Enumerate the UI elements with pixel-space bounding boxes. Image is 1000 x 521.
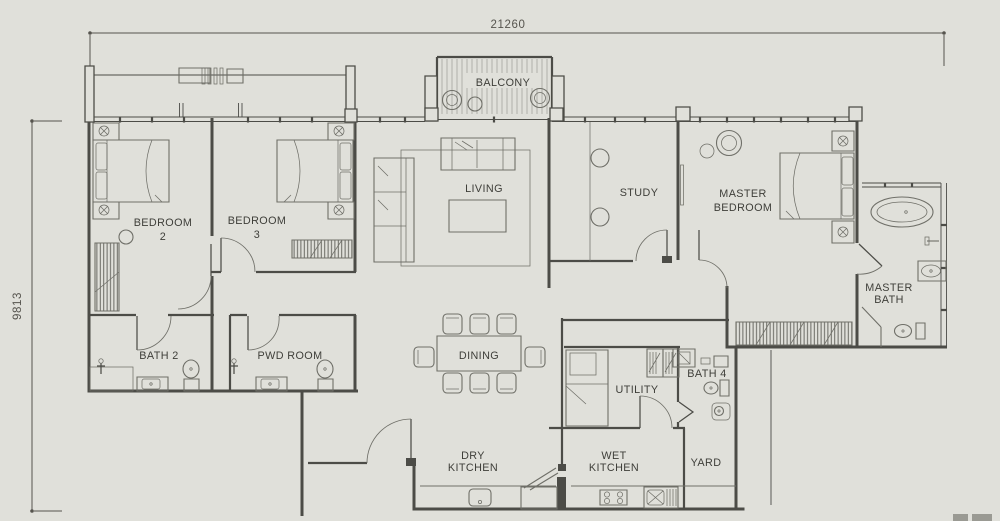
room-label-master-bath: MASTER xyxy=(865,282,912,294)
bathtub-icon xyxy=(871,197,933,227)
kitchen-sink-icon xyxy=(469,489,491,506)
room-label-master-bath: BATH xyxy=(874,294,904,306)
dimension-height-label: 9813 xyxy=(12,292,24,320)
floor-plan-page: 21260 9813 xyxy=(0,0,1000,521)
chaise-sofa-icon xyxy=(374,158,414,262)
master-bath-fixtures xyxy=(862,197,946,347)
nightstand-lamp-icon xyxy=(328,123,354,219)
room-label-dry-kitchen: KITCHEN xyxy=(448,462,498,474)
wardrobe-icon xyxy=(736,322,852,345)
coffee-table-icon xyxy=(449,200,506,232)
bath4-fixtures xyxy=(701,356,730,420)
shelf-icon xyxy=(714,356,728,367)
sink-icon xyxy=(256,377,287,391)
pwd-room-fixtures xyxy=(230,359,333,391)
stove-icon xyxy=(600,490,627,505)
floor-plan-drawing: 21260 9813 xyxy=(0,0,1000,521)
nightstand-lamp-icon xyxy=(93,123,119,219)
room-label-dry-kitchen: DRY xyxy=(461,450,485,462)
balcony-chairs-icon xyxy=(443,89,550,112)
armchair-icon xyxy=(700,131,742,159)
shower-screen xyxy=(862,307,881,347)
shower-icon xyxy=(90,359,133,391)
room-label-master-bedroom: BEDROOM xyxy=(714,202,773,214)
room-label-master-bedroom: MASTER xyxy=(719,188,766,200)
room-label-bedroom-3: BEDROOM xyxy=(228,215,287,227)
room-label-bedroom-2: BEDROOM xyxy=(134,217,193,229)
nightstand-lamp-icon xyxy=(832,131,854,243)
bath2-fixtures xyxy=(90,359,199,391)
dry-kitchen-counter xyxy=(420,468,558,509)
master-bedroom-furniture xyxy=(681,131,855,346)
wardrobe-icon xyxy=(95,243,119,311)
bed-icon xyxy=(780,153,854,219)
study-stool-icon xyxy=(591,208,609,226)
study-stool-icon xyxy=(591,149,609,167)
room-label-wet-kitchen: WET xyxy=(601,450,626,462)
tv-console-icon xyxy=(292,240,352,258)
room-label-bath-4: BATH 4 xyxy=(687,368,726,380)
study-furniture xyxy=(590,122,609,261)
toilet-icon xyxy=(183,360,199,391)
bed-icon xyxy=(93,140,169,202)
washer-dryer-icon xyxy=(647,349,679,377)
room-label-dining: DINING xyxy=(459,350,499,362)
room-label-utility: UTILITY xyxy=(616,384,659,396)
rug-icon xyxy=(401,150,530,266)
wet-kitchen-counter xyxy=(571,486,736,508)
room-label-bath-2: BATH 2 xyxy=(139,350,178,362)
toilet-icon xyxy=(317,360,333,391)
room-label-wet-kitchen: KITCHEN xyxy=(589,462,639,474)
kitchen-sink-icon xyxy=(644,487,678,508)
room-label-yard: YARD xyxy=(691,457,722,469)
sofa-icon xyxy=(441,138,515,170)
sink-icon xyxy=(137,377,168,391)
dimension-left: 9813 xyxy=(12,119,62,513)
room-label-bedroom-3: 3 xyxy=(254,229,260,241)
toilet-icon xyxy=(895,323,926,339)
appliance-lid-icon xyxy=(521,468,558,509)
shaft-icon xyxy=(673,349,695,367)
room-label-living: LIVING xyxy=(465,183,503,195)
bed-icon xyxy=(277,140,353,202)
dimension-width-label: 21260 xyxy=(491,19,526,31)
stool-icon xyxy=(119,230,133,244)
living-furniture xyxy=(374,138,530,266)
room-label-study: STUDY xyxy=(620,187,659,199)
mirror-icon xyxy=(701,358,710,364)
single-bed-icon xyxy=(566,350,608,426)
bedroom3-furniture xyxy=(277,123,354,258)
sink-icon xyxy=(712,403,730,420)
room-label-bedroom-2: 2 xyxy=(160,231,166,243)
towel-rail-icon xyxy=(925,237,939,245)
page-corner-marks xyxy=(953,514,992,521)
room-label-balcony: BALCONY xyxy=(476,77,530,89)
walls xyxy=(85,57,947,516)
room-labels: BALCONY LIVING STUDY MASTER BEDROOM BEDR… xyxy=(134,77,913,474)
toilet-icon xyxy=(704,380,729,396)
room-label-pwd-room: PWD ROOM xyxy=(258,350,323,362)
closet-track xyxy=(681,165,684,205)
ac-ledge-units-icon xyxy=(179,68,243,84)
vanity-sink-icon xyxy=(918,261,946,281)
tap-icon xyxy=(230,359,238,374)
